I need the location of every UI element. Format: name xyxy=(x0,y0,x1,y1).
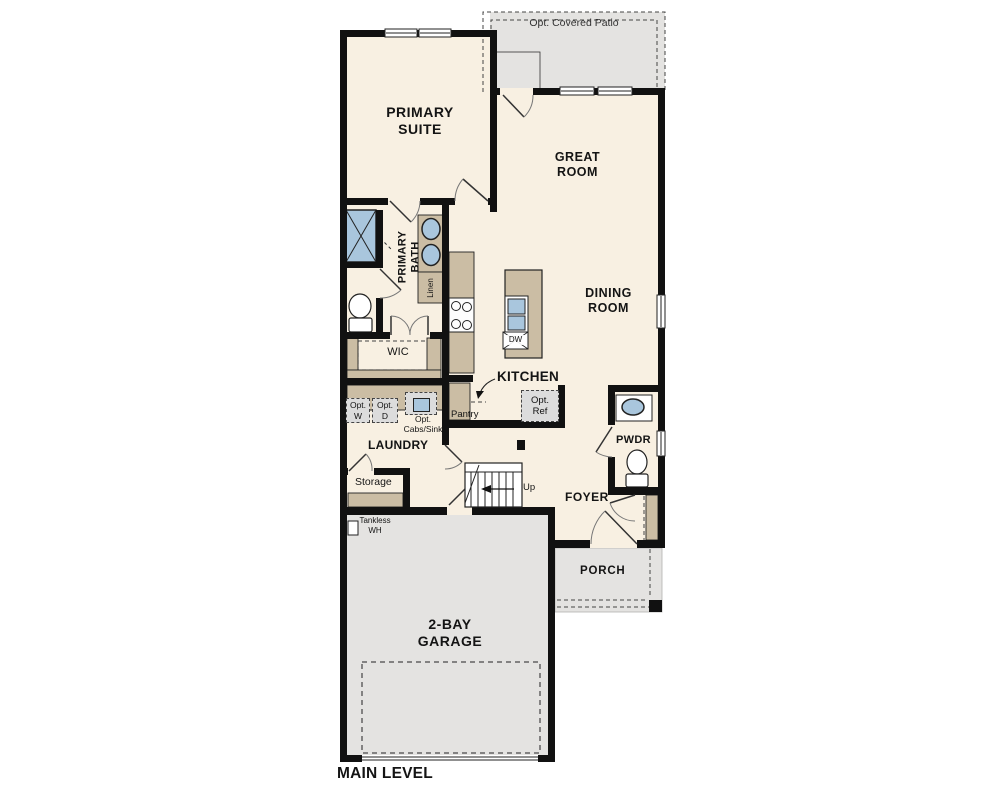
room-label-primary-suite: PRIMARY SUITE xyxy=(370,104,470,138)
label-up: Up xyxy=(523,482,535,493)
island-sink-icon xyxy=(505,296,528,332)
toilet-icon xyxy=(626,450,648,487)
room-label-garage: 2-BAY GARAGE xyxy=(400,616,500,650)
opt-sink-icon xyxy=(413,398,430,412)
room-label-foyer: FOYER xyxy=(565,490,609,504)
room-label-primary-bath: PRIMARY BATH xyxy=(396,231,421,283)
porch-post xyxy=(649,600,662,612)
stairs xyxy=(465,463,522,507)
label-opt-cabs-sink: Opt. Cabs/Sink xyxy=(396,415,450,435)
room-label-porch: PORCH xyxy=(580,565,626,579)
window-icon xyxy=(598,87,632,95)
label-pantry: Pantry xyxy=(451,409,478,420)
opt-refrigerator-box: Opt. Ref xyxy=(521,390,559,422)
label-dishwasher: DW xyxy=(504,335,527,345)
room-label-laundry: LAUNDRY xyxy=(368,438,428,452)
wic-shelf-left xyxy=(347,338,358,370)
floor-plan-svg xyxy=(0,0,1000,800)
room-label-pwdr: PWDR xyxy=(616,434,651,447)
range-icon xyxy=(449,298,474,332)
floor-plan: Opt. Covered Patio PRIMARY SUITE GREAT R… xyxy=(0,0,1000,800)
opt-dryer-box: Opt. D xyxy=(372,398,398,423)
wic-shelf-right xyxy=(427,338,441,370)
vanity-sink-icon xyxy=(422,245,440,266)
shower-icon xyxy=(346,210,376,262)
window-icon xyxy=(657,431,665,456)
room-label-wic: WIC xyxy=(377,346,419,359)
patio-step xyxy=(495,52,540,91)
label-tankless-wh: Tankless WH xyxy=(357,516,393,536)
room-label-great-room: GREAT ROOM xyxy=(530,150,625,180)
plan-caption-main-level: MAIN LEVEL xyxy=(337,765,433,784)
opt-cabs-sink-box xyxy=(405,392,437,415)
vanity-sink-icon xyxy=(422,219,440,240)
window-icon xyxy=(657,295,665,328)
label-linen: Linen xyxy=(426,278,436,298)
room-label-dining-room: DINING ROOM xyxy=(561,286,656,316)
foyer-closet-shelf xyxy=(646,495,658,540)
storage-shelf xyxy=(348,493,403,507)
window-icon xyxy=(385,29,417,37)
window-icon xyxy=(419,29,451,37)
pwdr-sink-icon xyxy=(616,395,652,421)
room-label-storage: Storage xyxy=(355,476,392,489)
toilet-icon xyxy=(349,294,372,332)
window-icon xyxy=(560,87,594,95)
opt-washer-box: Opt. W xyxy=(346,398,370,423)
room-label-kitchen: KITCHEN xyxy=(497,369,559,385)
room-label-patio: Opt. Covered Patio xyxy=(524,17,624,30)
